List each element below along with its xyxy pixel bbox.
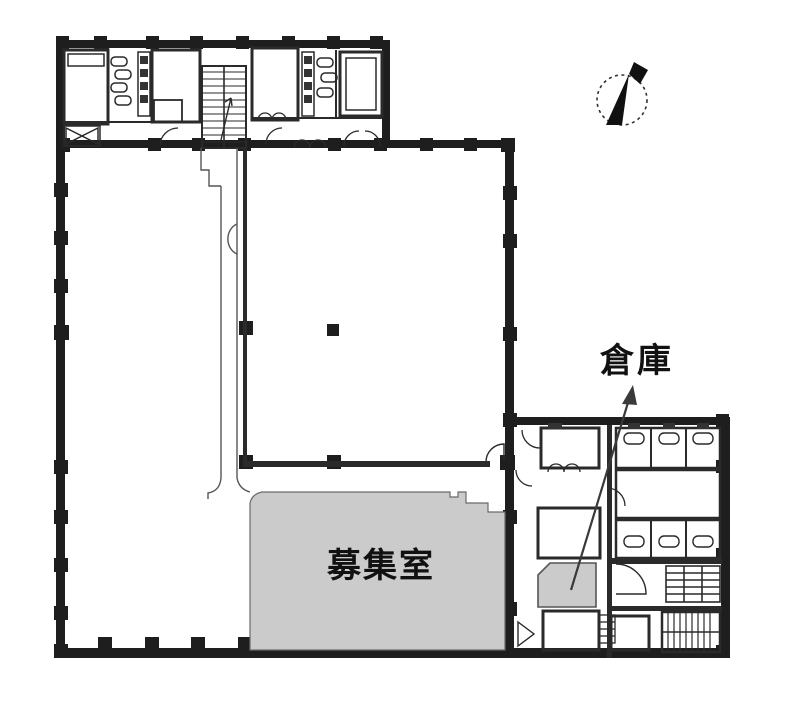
corridor-funnel-left <box>208 478 221 499</box>
hall-left-wall <box>243 148 247 463</box>
stall-row-top <box>616 428 720 468</box>
wing-door-1 <box>522 430 540 448</box>
north-compass-icon <box>597 62 648 125</box>
main-hall <box>243 140 504 467</box>
wing-room-1 <box>541 428 599 468</box>
toilet-fixtures-bottom <box>624 536 713 547</box>
corridor-jog <box>201 148 221 186</box>
wall-wing-right <box>721 417 730 658</box>
corridor-funnel-right <box>237 478 250 492</box>
core-room-a-detail <box>68 54 104 66</box>
floor-plan-svg: 募集室 <box>0 0 787 706</box>
core-room-b-sub <box>154 100 182 122</box>
wall-main-top <box>56 140 514 148</box>
corridor-door-swing <box>228 224 237 254</box>
compass-flag <box>629 62 648 84</box>
shaft-left-squares <box>140 56 148 103</box>
storage-room-area <box>538 563 596 607</box>
wall-wing-top <box>505 417 730 425</box>
wing-room-3 <box>543 611 599 650</box>
elevator-car <box>346 58 376 110</box>
core-room-a <box>64 50 108 124</box>
lower-door-swing <box>616 564 646 594</box>
wall-main-right <box>505 140 514 658</box>
core-area <box>64 48 382 148</box>
wc-fixtures-right <box>317 58 337 97</box>
storage-callout: 倉庫 <box>571 341 674 590</box>
stairwell-top <box>202 66 246 148</box>
washroom <box>616 470 720 518</box>
wing-door-2 <box>516 470 532 486</box>
core-room-b <box>152 50 200 122</box>
compass-needle <box>606 74 629 125</box>
toilet-block <box>607 423 722 564</box>
toilet-fixtures-top <box>624 433 713 444</box>
stall-row-bottom <box>616 520 720 558</box>
available-room: 募集室 <box>250 492 505 650</box>
right-wing <box>516 423 722 658</box>
floor-plan-page: 募集室 <box>0 0 787 706</box>
shaft-right-squares <box>304 56 312 103</box>
storage-arrow-head <box>622 385 637 405</box>
small-box-room <box>611 616 649 650</box>
wing-room-2 <box>538 508 600 558</box>
stairwell-bottom <box>662 612 720 652</box>
available-room-label: 募集室 <box>326 546 435 586</box>
storage-label: 倉庫 <box>599 341 674 381</box>
hall-bottom-wall <box>243 461 490 467</box>
shelf-room <box>666 566 720 602</box>
wc-fixtures-left <box>111 57 131 105</box>
core-room-c <box>252 48 298 120</box>
wing-door-mark <box>518 622 534 646</box>
